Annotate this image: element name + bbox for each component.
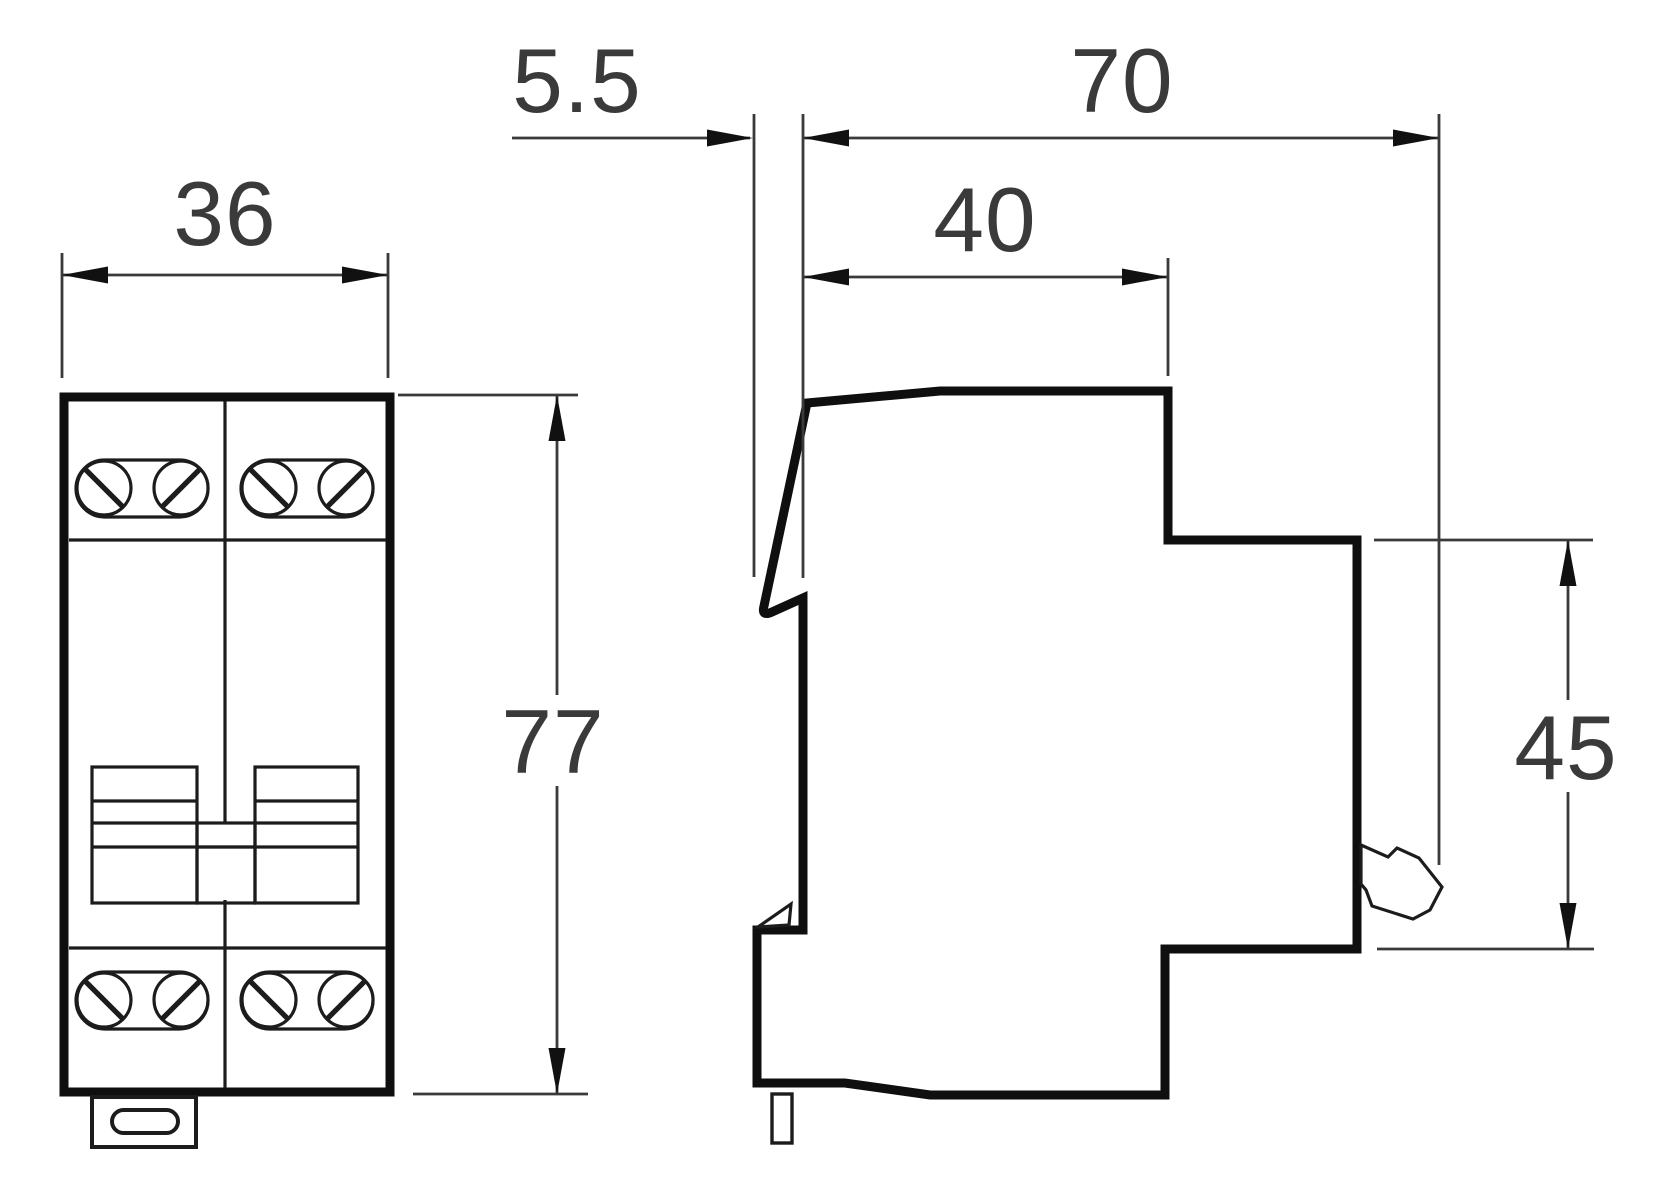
toggle-handle-left [92, 767, 197, 903]
arrowhead-right-icon [342, 267, 388, 284]
dim-label-overall-depth: 70 [1070, 31, 1173, 132]
din-clip-slot [112, 1110, 178, 1133]
arrowhead-right-icon [1122, 269, 1168, 286]
dim-label-overall-height: 77 [501, 692, 604, 793]
dim-label-body-depth: 40 [933, 170, 1036, 271]
arrowhead-down-icon [549, 1048, 566, 1094]
drawing-canvas: 36 5.5 70 40 77 [0, 0, 1667, 1200]
arrowhead-left-icon [803, 130, 849, 147]
front-view [64, 397, 390, 1147]
arrowhead-up-icon [1560, 540, 1577, 586]
dimension-overall-height: 77 [398, 395, 605, 1094]
dimension-front-width: 36 [62, 164, 388, 378]
dimension-overall-depth: 70 [803, 31, 1439, 147]
dim-label-front-width: 36 [173, 164, 276, 265]
din-clip-tab [92, 1097, 196, 1147]
toggle-lever-arrow-icon [1361, 845, 1442, 919]
dim-label-rail-depth: 5.5 [512, 31, 642, 132]
clip-pin [772, 1094, 792, 1143]
dimension-drawing: 36 5.5 70 40 77 [0, 0, 1667, 1200]
arrowhead-left-icon [803, 269, 849, 286]
rail-latch-triangle [758, 904, 791, 927]
arrowhead-up-icon [549, 395, 566, 441]
side-profile-outline [757, 391, 1357, 1095]
arrowhead-right-icon [1393, 130, 1439, 147]
side-view [757, 391, 1442, 1143]
arrowhead-down-icon [1560, 903, 1577, 949]
arrowhead-right-icon [707, 130, 753, 147]
dimension-body-depth: 40 [803, 170, 1168, 286]
dim-label-front-face-height: 45 [1514, 698, 1617, 799]
toggle-handle-right [255, 767, 358, 903]
arrowhead-left-icon [62, 267, 108, 284]
dimension-rail-depth: 5.5 [512, 31, 753, 147]
